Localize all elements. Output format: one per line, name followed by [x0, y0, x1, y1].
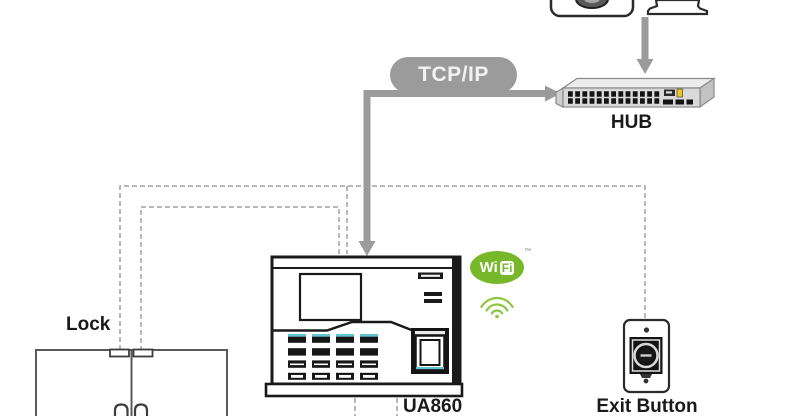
- wifi-signal-icon: [481, 298, 512, 314]
- hub-left-face: [556, 88, 563, 107]
- hub-yellow-module: [677, 89, 683, 97]
- arrow-into-device: [359, 241, 376, 256]
- hub-right-ports: [663, 100, 693, 105]
- fingerprint-scan-line: [416, 367, 444, 369]
- lock-doors: [36, 350, 227, 416]
- tcpip-label: TCP/IP: [390, 57, 517, 93]
- exit-button-icon: [624, 320, 669, 392]
- device-right-band: [452, 258, 460, 384]
- camera-icon: [551, 0, 633, 16]
- wifi-wi-text: Wi: [480, 259, 498, 276]
- monitor-base-icon: [648, 0, 707, 14]
- lock-plate-left: [110, 350, 129, 357]
- hub-top-face: [563, 79, 714, 89]
- lock-label: Lock: [66, 315, 110, 334]
- network-diagram: TCP/IP HUB Lock UA860 Exit Button Wi Fi …: [0, 0, 785, 416]
- arrow-into-hub-top: [637, 59, 654, 74]
- tcpip-link-line: [367, 94, 546, 244]
- hub-switch-icon: [556, 79, 714, 108]
- device-model-label: UA860: [403, 397, 462, 416]
- door-handle-right: [135, 405, 147, 416]
- exit-screw-top: [644, 327, 649, 332]
- wifi-logo-text: Wi Fi ™: [470, 251, 524, 284]
- exit-screw-bottom: [644, 379, 649, 384]
- exit-button-label: Exit Button: [582, 397, 712, 416]
- wifi-fi-text: Fi: [500, 261, 515, 275]
- device-screen: [300, 274, 361, 320]
- door-handle-left: [115, 405, 128, 416]
- wifi-trademark: ™: [524, 248, 531, 255]
- hub-label: HUB: [563, 113, 700, 132]
- wifi-signal-dot: [495, 315, 499, 319]
- ua860-terminal-icon: [266, 257, 462, 396]
- lock-plate-right: [134, 350, 153, 357]
- device-bottom-band: [266, 384, 462, 396]
